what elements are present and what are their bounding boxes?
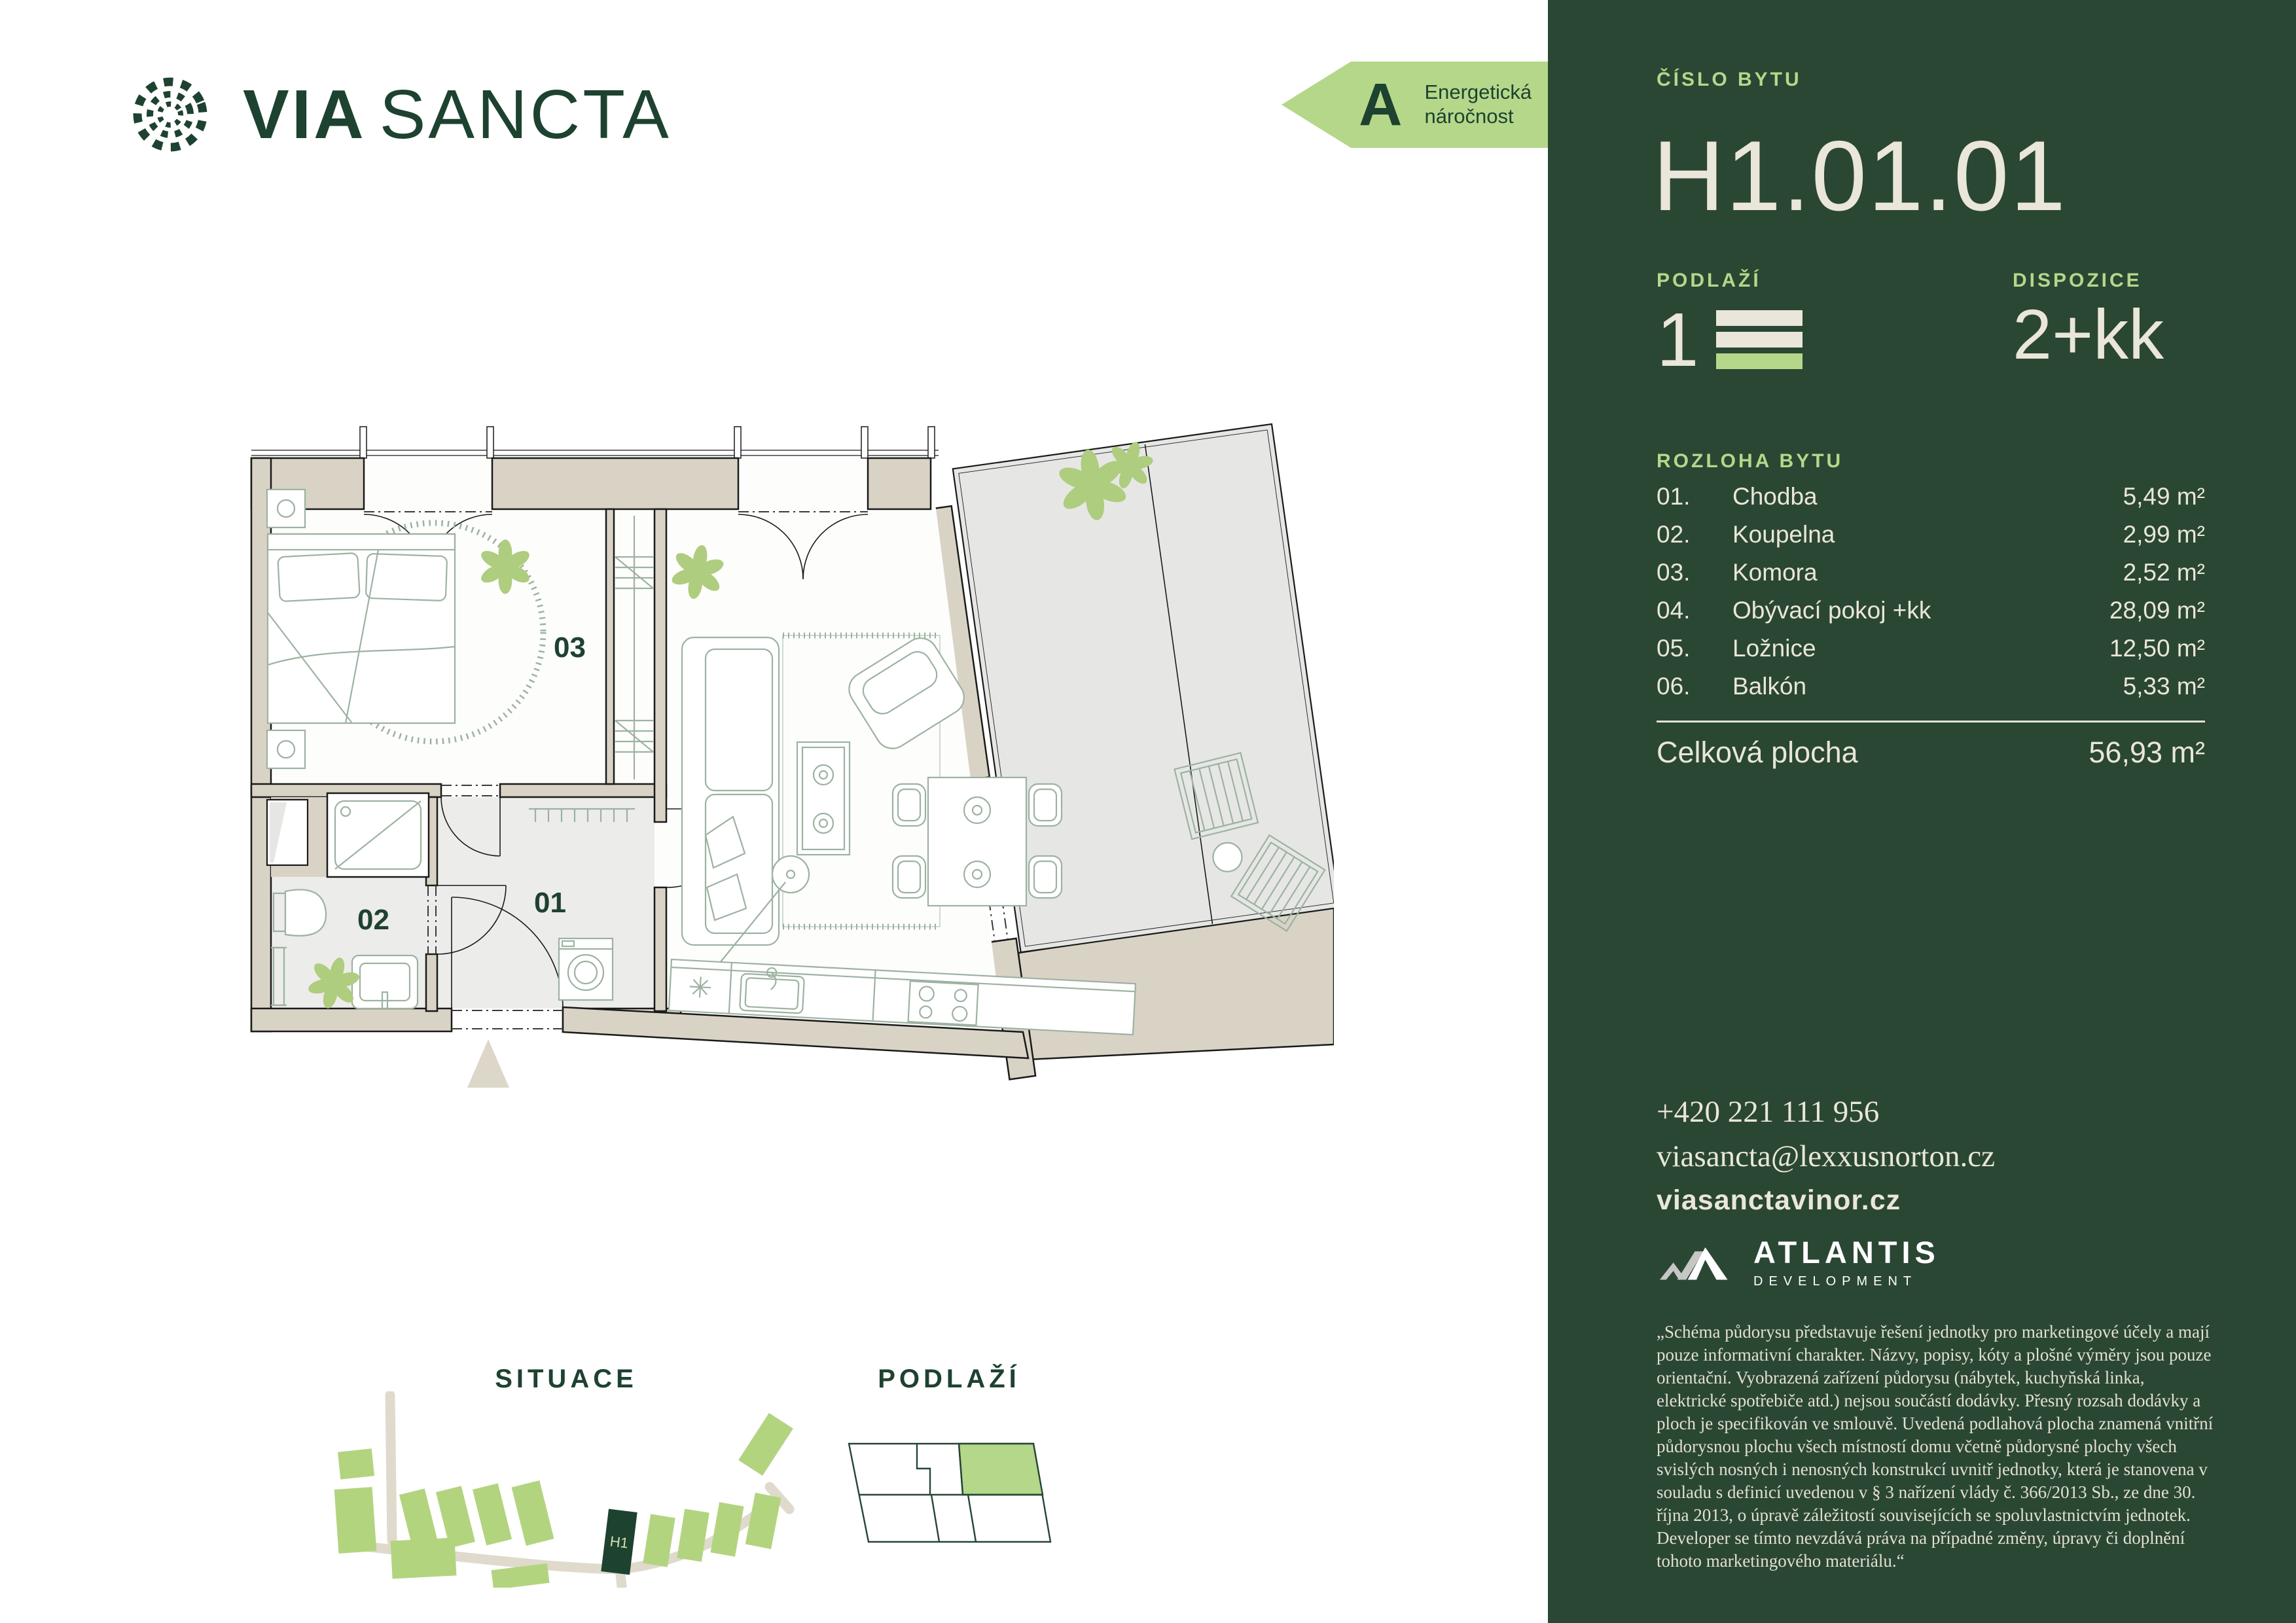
unit-number-label: ČÍSLO BYTU <box>1657 69 1802 91</box>
disclaimer-text: „Schéma půdorysu představuje řešení jedn… <box>1657 1321 2218 1573</box>
room-name: Chodba <box>1732 483 2123 510</box>
floor-number: 1 <box>1657 296 1699 383</box>
room-num: 01. <box>1657 483 1732 510</box>
brand-word-sancta: SANCTA <box>380 75 672 154</box>
brand-logo: VIA SANCTA <box>121 65 672 164</box>
energy-label-line2: náročnost <box>1424 105 1513 128</box>
highlighted-unit <box>959 1444 1043 1495</box>
floor-locator-map <box>840 1440 1056 1548</box>
site-buildings <box>334 1413 793 1588</box>
energy-rating-badge: A Energetická náročnost <box>1282 62 1549 148</box>
entrance-arrow <box>467 1039 509 1088</box>
room-name: Obývací pokoj +kk <box>1732 597 2109 624</box>
table-row: 01. Chodba 5,49 m² <box>1657 483 2205 521</box>
contact-website: viasanctavinor.cz <box>1657 1185 1995 1217</box>
total-divider <box>1657 721 2205 722</box>
site-map: H1 <box>327 1391 805 1588</box>
total-value: 56,93 m² <box>2089 736 2205 770</box>
energy-label-line1: Energetická <box>1424 80 1532 103</box>
room-name: Ložnice <box>1732 635 2109 662</box>
brand-word-via: VIA <box>243 75 367 154</box>
floor-lamp <box>772 856 809 893</box>
podlazi-title: PODLAŽÍ <box>821 1364 1077 1394</box>
tv-stand <box>797 742 850 855</box>
spiral-logo-icon <box>121 65 219 164</box>
pillow <box>278 553 359 601</box>
nightstand <box>267 490 305 527</box>
energy-rating-label: Energetická náročnost <box>1424 80 1532 128</box>
developer-subtitle: DEVELOPMENT <box>1753 1274 1940 1289</box>
room-label-hall: 01 <box>534 887 566 919</box>
room-name: Balkón <box>1732 673 2123 700</box>
room-name: Koupelna <box>1732 521 2123 548</box>
h1-tag: H1 <box>609 1533 629 1551</box>
contact-block: +420 221 111 956 viasancta@lexxusnorton.… <box>1657 1094 1995 1217</box>
total-row: Celková plocha 56,93 m² <box>1657 736 2205 770</box>
disposition-label: DISPOZICE <box>2013 270 2142 292</box>
room-area: 2,99 m² <box>2123 521 2205 548</box>
room-num: 02. <box>1657 521 1732 548</box>
room-label-storage: 03 <box>554 632 586 664</box>
brand-name: VIA SANCTA <box>243 75 672 154</box>
top-wall-b <box>492 458 738 509</box>
pillow <box>366 554 447 601</box>
room-area: 5,49 m² <box>2123 483 2205 510</box>
contact-email: viasancta@lexxusnorton.cz <box>1657 1139 1995 1174</box>
contact-phone: +420 221 111 956 <box>1657 1094 1995 1130</box>
developer-name: ATLANTIS <box>1753 1234 1940 1270</box>
table-row: 06. Balkón 5,33 m² <box>1657 673 2205 711</box>
room-area: 12,50 m² <box>2109 635 2205 662</box>
room-name: Komora <box>1732 559 2123 586</box>
room-num: 06. <box>1657 673 1732 700</box>
table-row: 04. Obývací pokoj +kk 28,09 m² <box>1657 597 2205 635</box>
total-label: Celková plocha <box>1657 736 1858 770</box>
room-table: 01. Chodba 5,49 m² 02. Koupelna 2,99 m² … <box>1657 483 2205 711</box>
situace-title: SITUACE <box>327 1364 805 1394</box>
room-area: 2,52 m² <box>2123 559 2205 586</box>
floor-value: 1 <box>1657 296 1803 383</box>
room-area: 5,33 m² <box>2123 673 2205 700</box>
room-area: 28,09 m² <box>2109 597 2205 624</box>
toilet <box>285 889 326 935</box>
table-row: 02. Koupelna 2,99 m² <box>1657 521 2205 559</box>
disposition-value: 2+kk <box>2013 293 2164 375</box>
area-section-label: ROZLOHA BYTU <box>1657 450 1843 473</box>
top-wall-c <box>868 458 931 509</box>
unit-number: H1.01.01 <box>1653 119 2067 234</box>
room-num: 05. <box>1657 635 1732 662</box>
info-panel: ČÍSLO BYTU H1.01.01 PODLAŽÍ 1 DISPOZICE … <box>1548 0 2296 1623</box>
energy-rating-letter: A <box>1359 71 1402 139</box>
developer-logo: ATLANTIS DEVELOPMENT <box>1657 1234 1940 1289</box>
table-row: 05. Ložnice 12,50 m² <box>1657 635 2205 673</box>
mountain-logo-icon <box>1657 1234 1736 1289</box>
floor-level-icon <box>1716 310 1803 369</box>
room-num: 04. <box>1657 597 1732 624</box>
flyer-page: VIA SANCTA A Energetická náročnost <box>0 0 2296 1623</box>
nightstand <box>267 730 305 768</box>
table-row: 03. Komora 2,52 m² <box>1657 559 2205 597</box>
floor-plan: 02 01 03 <box>247 416 1334 1097</box>
room-label-bathroom: 02 <box>357 904 389 936</box>
floor-label: PODLAŽÍ <box>1657 270 1761 292</box>
room-num: 03. <box>1657 559 1732 586</box>
bottom-wall-left <box>251 1008 452 1031</box>
